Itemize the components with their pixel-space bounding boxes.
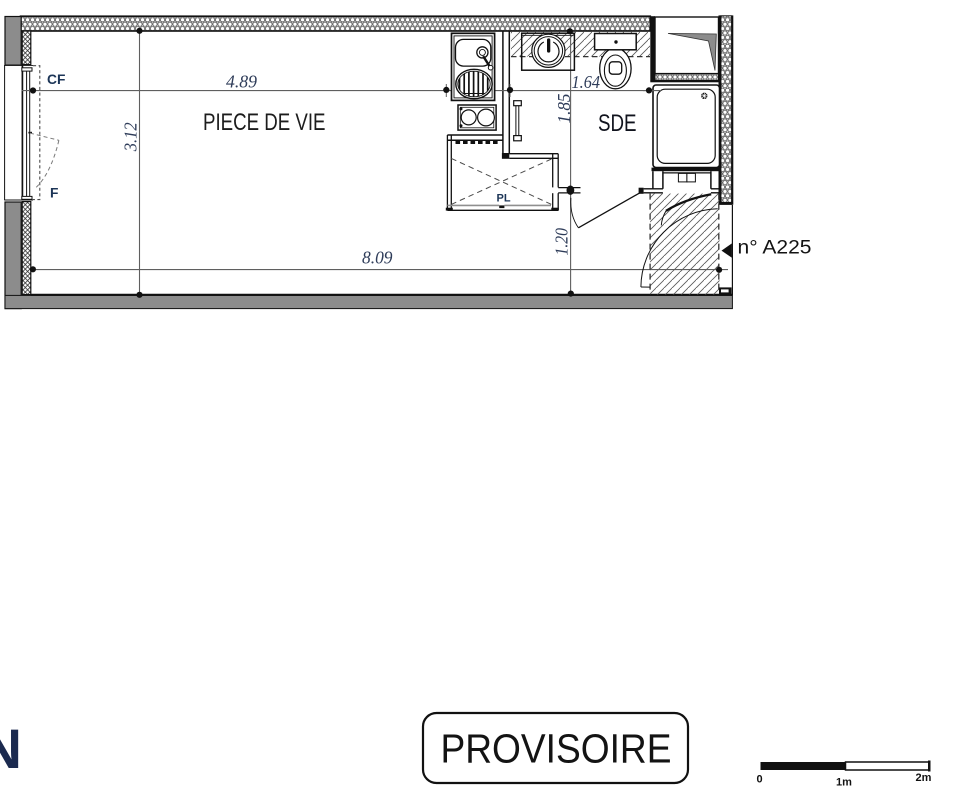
svg-text:PIECE DE VIE: PIECE DE VIE: [203, 109, 326, 136]
svg-text:PROVISOIRE: PROVISOIRE: [441, 726, 672, 772]
svg-text:1.85: 1.85: [554, 93, 574, 123]
svg-text:4.89: 4.89: [226, 72, 257, 92]
svg-text:8.09: 8.09: [362, 248, 393, 268]
svg-text:PL: PL: [497, 193, 511, 205]
svg-text:1.64: 1.64: [572, 72, 601, 92]
svg-text:CF: CF: [47, 72, 65, 87]
svg-text:N: N: [0, 717, 22, 780]
svg-text:n° A225: n° A225: [738, 237, 812, 259]
svg-text:SDE: SDE: [598, 110, 637, 137]
svg-text:2m: 2m: [916, 772, 932, 784]
svg-text:0: 0: [757, 774, 763, 786]
svg-text:F: F: [50, 186, 58, 201]
svg-text:1.20: 1.20: [552, 228, 572, 256]
svg-text:1m: 1m: [836, 777, 852, 789]
svg-text:3.12: 3.12: [121, 122, 141, 152]
